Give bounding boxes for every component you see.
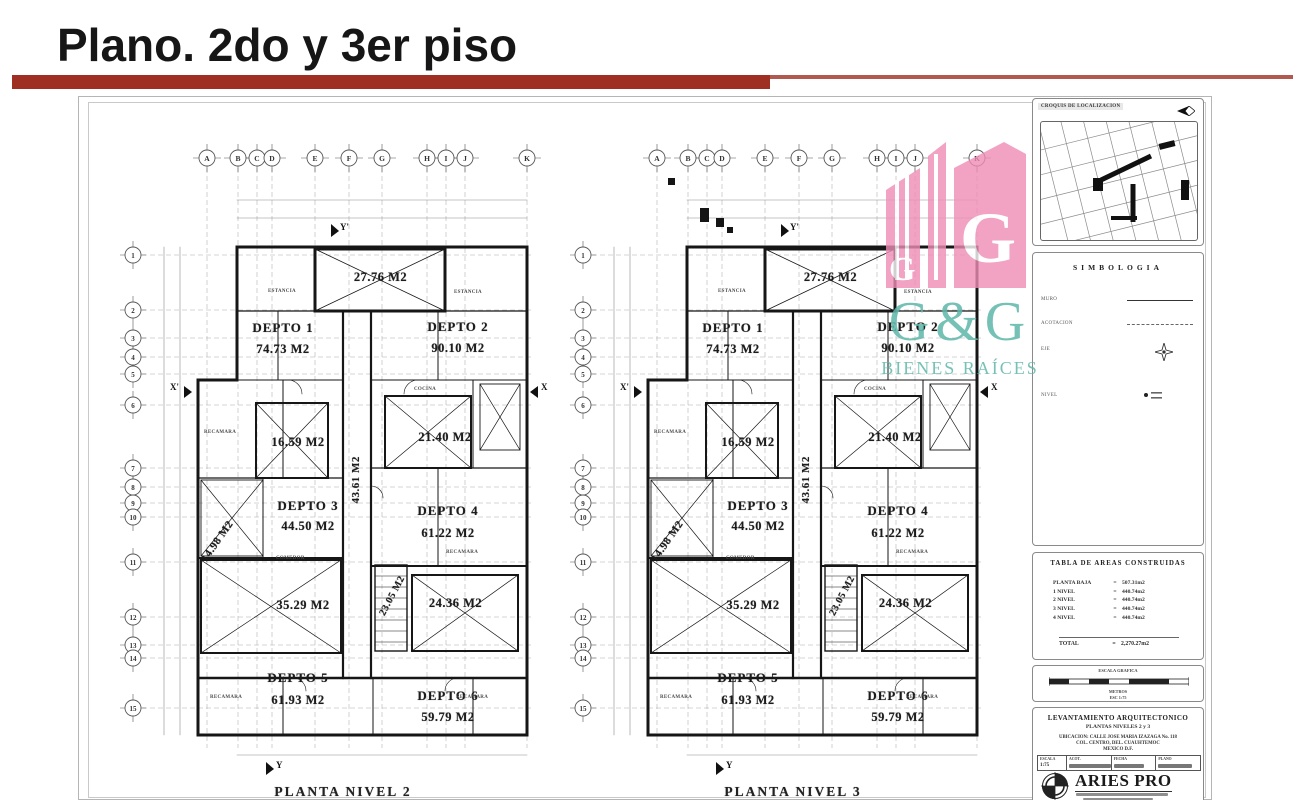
svg-text:6: 6 [131,402,135,410]
sim-item-acotacion: ACOTACION [1041,321,1073,326]
svg-text:J: J [463,154,467,163]
table-total-row: TOTAL = 2,270.27m2 [1059,637,1179,647]
room-label: RECAMARA [654,430,686,435]
page-title: Plano. 2do y 3er piso [57,18,517,72]
scale-ratio-label: ESC 1:75 [1033,695,1203,700]
depto5-name: DEPTO 5 [688,671,808,685]
svg-text:C: C [704,154,709,163]
table-row: PLANTA BAJA=507.31m2 [1053,579,1185,588]
areas-table-title: TABLA DE AREAS CONSTRUIDAS [1033,560,1203,567]
section-marker-y-bottom: Y [276,760,283,770]
ink-blob [700,208,709,222]
croquis-title: CROQUIS DE LOCALIZACION [1038,103,1123,110]
section-marker-x-left: X' [620,382,629,392]
area-label-mid-right: 21.40 M2 [840,431,950,444]
svg-text:E: E [312,154,317,163]
plan-caption-level-2: PLANTA NIVEL 2 [223,784,463,800]
svg-text:7: 7 [131,465,135,473]
svg-text:B: B [685,154,690,163]
svg-text:13: 13 [130,642,138,650]
simbologia-title: SIMBOLOGIA [1033,263,1203,272]
svg-text:13: 13 [580,642,588,650]
svg-text:5: 5 [581,371,585,379]
svg-text:2: 2 [581,307,585,315]
field-value-smudge [1158,764,1192,768]
scale-units-label: METROS [1033,689,1203,694]
svg-text:4: 4 [581,354,585,362]
svg-text:1: 1 [581,252,585,260]
svg-text:C: C [254,154,259,163]
svg-text:8: 8 [581,484,585,492]
room-label: COMEDOR [276,556,305,561]
field-value-smudge [1114,764,1144,768]
depto4-area: 61.22 M2 [838,527,958,540]
room-label: RECAMARA [906,695,938,700]
depto1-area: 74.73 M2 [223,343,343,356]
croquis-box: CROQUIS DE LOCALIZACION [1032,98,1204,246]
gg-watermark-text: G&G [884,294,1036,350]
level-marker-symbol [1143,391,1163,403]
company-tagline-smudge [1076,793,1168,796]
titleblock-fields: ESCALA 1:75 ACOT. FECHA PLANO [1037,755,1201,771]
slide: Plano. 2do y 3er piso ABCDEFGHIJK1234567… [0,0,1300,800]
svg-text:12: 12 [130,614,138,622]
svg-text:A: A [204,154,210,163]
svg-text:3: 3 [581,335,585,343]
room-label: RECAMARA [660,695,692,700]
field-escala: ESCALA 1:75 [1038,756,1067,770]
ink-blob [716,218,724,227]
room-label: COCINA [414,387,436,392]
sim-item-eje: EJE [1041,347,1050,352]
depto6-name: DEPTO 6 [388,689,508,703]
area-label-patio-top: 27.76 M2 [773,271,888,284]
titleblock-line4: COL. CENTRO, DEL. CUAUHTEMOC [1033,741,1203,746]
svg-text:G: G [379,154,385,163]
section-marker-y-bottom: Y [726,760,733,770]
floor-plan-level-2: ABCDEFGHIJK123456789101112131415 27.76 M… [118,136,562,800]
area-label-low-left: 35.29 M2 [243,599,363,612]
section-marker-x-right: X [991,382,998,392]
depto5-area: 61.93 M2 [238,694,358,707]
titleblock-line5: MEXICO D.F. [1033,747,1203,752]
compass-symbol [1155,343,1173,361]
svg-text:A: A [654,154,660,163]
svg-text:B: B [235,154,240,163]
title-accent-line [770,75,1293,79]
graphic-scale-title: ESCALA GRAFICA [1033,668,1203,673]
svg-text:1: 1 [131,252,135,260]
location-map [1040,121,1198,241]
room-label: ESTANCIA [718,289,746,294]
field-fecha: FECHA [1112,756,1157,770]
depto4-name: DEPTO 4 [388,504,508,518]
logo-letter-g-small: G [889,251,915,288]
area-label-low-left: 35.29 M2 [693,599,813,612]
svg-text:15: 15 [130,705,138,713]
table-row: 1 NIVEL=440.74m2 [1053,588,1185,597]
field-value-smudge [1069,764,1111,768]
aries-pro-logo-icon [1041,772,1069,800]
area-label-mid-right: 21.40 M2 [390,431,500,444]
bienes-raices-watermark-text: BIENES RAÍCES [872,358,1048,379]
svg-text:11: 11 [130,559,137,567]
depto6-area: 59.79 M2 [388,711,508,724]
room-label: RECAMARA [896,550,928,555]
svg-text:F: F [797,154,802,163]
area-label-mid-left: 16.59 M2 [243,436,353,449]
room-label: COCINA [864,387,886,392]
svg-text:G: G [829,154,835,163]
svg-text:H: H [424,154,430,163]
depto2-name: DEPTO 2 [398,320,518,334]
svg-text:14: 14 [580,655,588,663]
room-label: ESTANCIA [268,289,296,294]
ink-blob [727,227,733,233]
svg-text:5: 5 [131,371,135,379]
section-marker-y-top: Y' [790,222,799,232]
svg-text:8: 8 [131,484,135,492]
graphic-scale-box: ESCALA GRAFICA METROS ESC 1:75 [1032,665,1204,702]
depto5-area: 61.93 M2 [688,694,808,707]
depto1-area: 74.73 M2 [673,343,793,356]
room-label: RECAMARA [446,550,478,555]
depto2-area: 90.10 M2 [398,342,518,355]
svg-text:I: I [445,154,448,163]
svg-text:D: D [719,154,725,163]
depto5-name: DEPTO 5 [238,671,358,685]
room-label: RECAMARA [204,430,236,435]
depto3-name: DEPTO 3 [253,499,363,513]
area-label-low-right: 24.36 M2 [398,597,513,610]
dashed-line-symbol [1127,324,1193,325]
room-label: ESTANCIA [454,290,482,295]
area-label-mid-left: 16.59 M2 [693,436,803,449]
company-strip: ARIES PRO [1039,772,1199,798]
depto6-name: DEPTO 6 [838,689,958,703]
areas-table-rows: PLANTA BAJA=507.31m2 1 NIVEL=440.74m2 2 … [1053,579,1185,622]
svg-text:10: 10 [580,514,588,522]
svg-text:7: 7 [581,465,585,473]
room-label: COMEDOR [726,556,755,561]
logo-letter-g-big: G [960,198,1016,278]
depto1-name: DEPTO 1 [673,321,793,335]
svg-text:D: D [269,154,275,163]
room-label: RECAMARA [210,695,242,700]
table-row: 3 NIVEL=440.74m2 [1053,605,1185,614]
svg-text:E: E [762,154,767,163]
table-row: 4 NIVEL=440.74m2 [1053,614,1185,623]
graphic-scale-bar [1049,677,1189,686]
table-row: 2 NIVEL=440.74m2 [1053,596,1185,605]
sim-item-nivel: NIVEL [1041,393,1058,398]
svg-text:6: 6 [581,402,585,410]
gg-buildings-watermark-logo: G G [876,128,1032,294]
titleblock-line1: LEVANTAMIENTO ARQUITECTONICO [1033,714,1203,722]
titleblock-line3: UBICACION: CALLE JOSE MARIA IZAZAGA No. … [1033,735,1203,740]
depto4-area: 61.22 M2 [388,527,508,540]
ink-blob [668,178,675,185]
svg-text:F: F [347,154,352,163]
company-name: ARIES PRO [1075,772,1172,792]
section-marker-y-top: Y' [340,222,349,232]
svg-text:2: 2 [131,307,135,315]
svg-text:K: K [524,154,530,163]
svg-text:9: 9 [581,500,585,508]
field-plano: PLANO [1156,756,1200,770]
field-acot: ACOT. [1067,756,1112,770]
svg-text:12: 12 [580,614,588,622]
svg-text:15: 15 [580,705,588,713]
depto3-area: 44.50 M2 [703,520,813,533]
north-arrow-icon [1177,103,1195,121]
areas-table-box: TABLA DE AREAS CONSTRUIDAS PLANTA BAJA=5… [1032,552,1204,660]
svg-text:4: 4 [131,354,135,362]
svg-text:10: 10 [130,514,138,522]
depto6-area: 59.79 M2 [838,711,958,724]
depto3-area: 44.50 M2 [253,520,363,533]
svg-text:9: 9 [131,500,135,508]
title-accent-bar [12,75,770,89]
svg-text:14: 14 [130,655,138,663]
section-marker-x-left: X' [170,382,179,392]
area-label-low-right: 24.36 M2 [848,597,963,610]
area-label-patio-top: 27.76 M2 [323,271,438,284]
solid-line-symbol [1127,300,1193,301]
simbologia-box: SIMBOLOGIA MURO ACOTACION EJE NIVEL [1032,252,1204,546]
depto3-name: DEPTO 3 [703,499,813,513]
sim-item-muro: MURO [1041,297,1057,302]
depto1-name: DEPTO 1 [223,321,343,335]
title-block: LEVANTAMIENTO ARQUITECTONICO PLANTAS NIV… [1032,707,1204,800]
depto4-name: DEPTO 4 [838,504,958,518]
section-marker-x-right: X [541,382,548,392]
titleblock-line2: PLANTAS NIVELES 2 y 3 [1033,724,1203,730]
svg-text:11: 11 [580,559,587,567]
room-label: RECAMARA [456,695,488,700]
plan-caption-level-3: PLANTA NIVEL 3 [673,784,913,800]
svg-text:3: 3 [131,335,135,343]
